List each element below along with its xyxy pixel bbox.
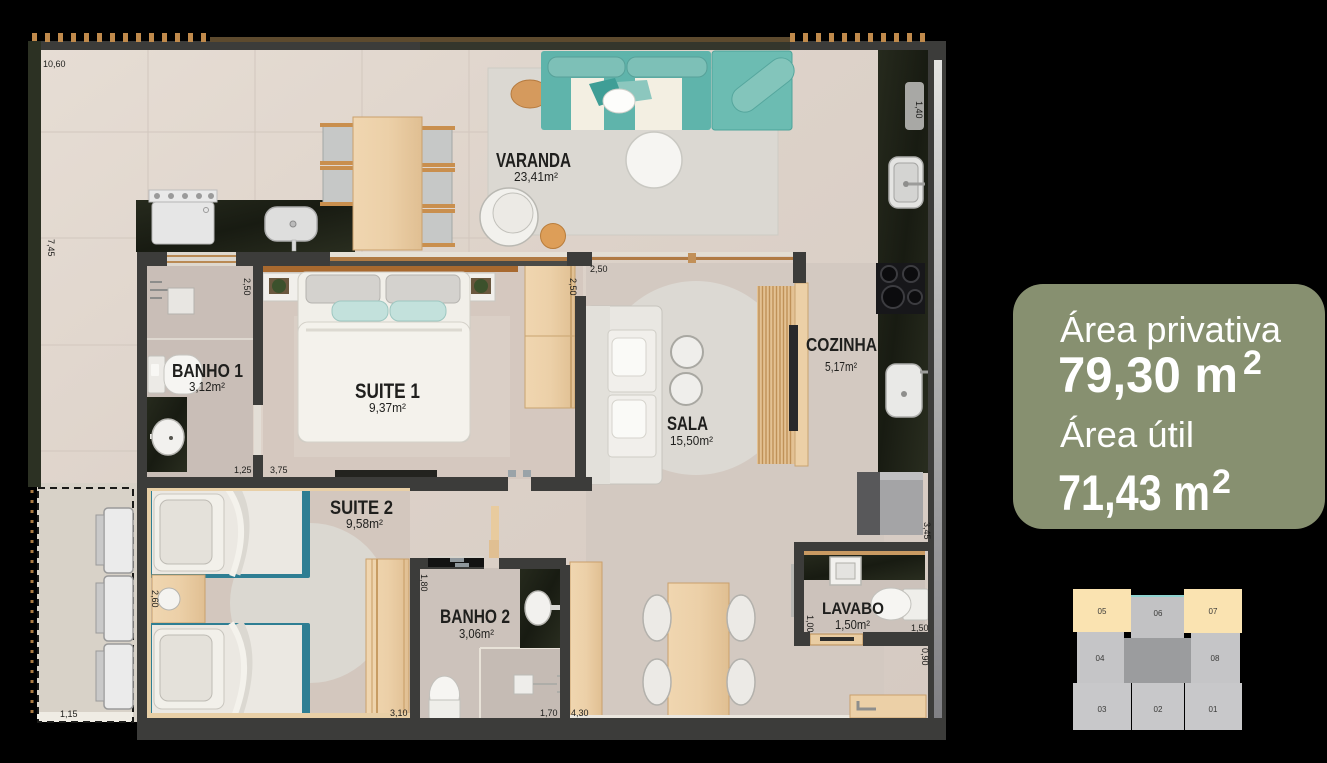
- svg-text:2,50: 2,50: [590, 264, 608, 274]
- svg-text:1,50m²: 1,50m²: [835, 618, 870, 632]
- svg-text:71,43 m: 71,43 m: [1058, 465, 1210, 521]
- svg-text:COZINHA: COZINHA: [806, 335, 877, 355]
- svg-text:7,45: 7,45: [46, 239, 56, 257]
- svg-text:BANHO 1: BANHO 1: [172, 361, 243, 381]
- svg-text:08: 08: [1211, 654, 1220, 663]
- svg-text:06: 06: [1154, 609, 1163, 618]
- svg-text:79,30 m: 79,30 m: [1058, 347, 1238, 403]
- svg-text:3,12m²: 3,12m²: [189, 380, 225, 394]
- svg-text:1,15: 1,15: [60, 709, 78, 719]
- svg-text:1,40: 1,40: [914, 101, 924, 119]
- svg-text:1,00: 1,00: [805, 615, 815, 633]
- svg-text:LAVABO: LAVABO: [822, 599, 884, 618]
- svg-text:23,41m²: 23,41m²: [514, 169, 559, 184]
- svg-text:1,70: 1,70: [540, 708, 558, 718]
- svg-text:07: 07: [1209, 607, 1218, 616]
- svg-text:0,90: 0,90: [920, 648, 930, 666]
- svg-text:2,60: 2,60: [150, 590, 160, 608]
- svg-text:1,50: 1,50: [911, 623, 929, 633]
- svg-text:SUITE 2: SUITE 2: [330, 498, 393, 519]
- svg-text:3,45: 3,45: [922, 522, 932, 540]
- svg-text:01: 01: [1209, 705, 1218, 714]
- svg-text:15,50m²: 15,50m²: [670, 434, 713, 448]
- svg-text:3,75: 3,75: [270, 465, 288, 475]
- svg-text:10,60: 10,60: [43, 59, 66, 69]
- svg-text:9,58m²: 9,58m²: [346, 517, 383, 531]
- svg-text:1,80: 1,80: [419, 574, 429, 592]
- svg-text:BANHO 2: BANHO 2: [440, 607, 510, 628]
- svg-text:4,30: 4,30: [571, 708, 589, 718]
- svg-text:3,06m²: 3,06m²: [459, 627, 494, 641]
- svg-text:SALA: SALA: [667, 414, 708, 435]
- svg-text:02: 02: [1154, 705, 1163, 714]
- svg-text:2,50: 2,50: [242, 278, 252, 296]
- svg-text:04: 04: [1096, 654, 1105, 663]
- svg-text:2,50: 2,50: [568, 278, 578, 296]
- svg-text:2: 2: [1243, 344, 1262, 382]
- svg-text:1,25: 1,25: [234, 465, 252, 475]
- svg-text:05: 05: [1098, 607, 1107, 616]
- svg-text:9,37m²: 9,37m²: [369, 400, 407, 415]
- svg-text:3,10: 3,10: [390, 708, 408, 718]
- svg-text:Área útil: Área útil: [1060, 414, 1194, 455]
- svg-text:2: 2: [1212, 463, 1231, 501]
- svg-text:03: 03: [1098, 705, 1107, 714]
- svg-text:5,17m²: 5,17m²: [825, 360, 857, 374]
